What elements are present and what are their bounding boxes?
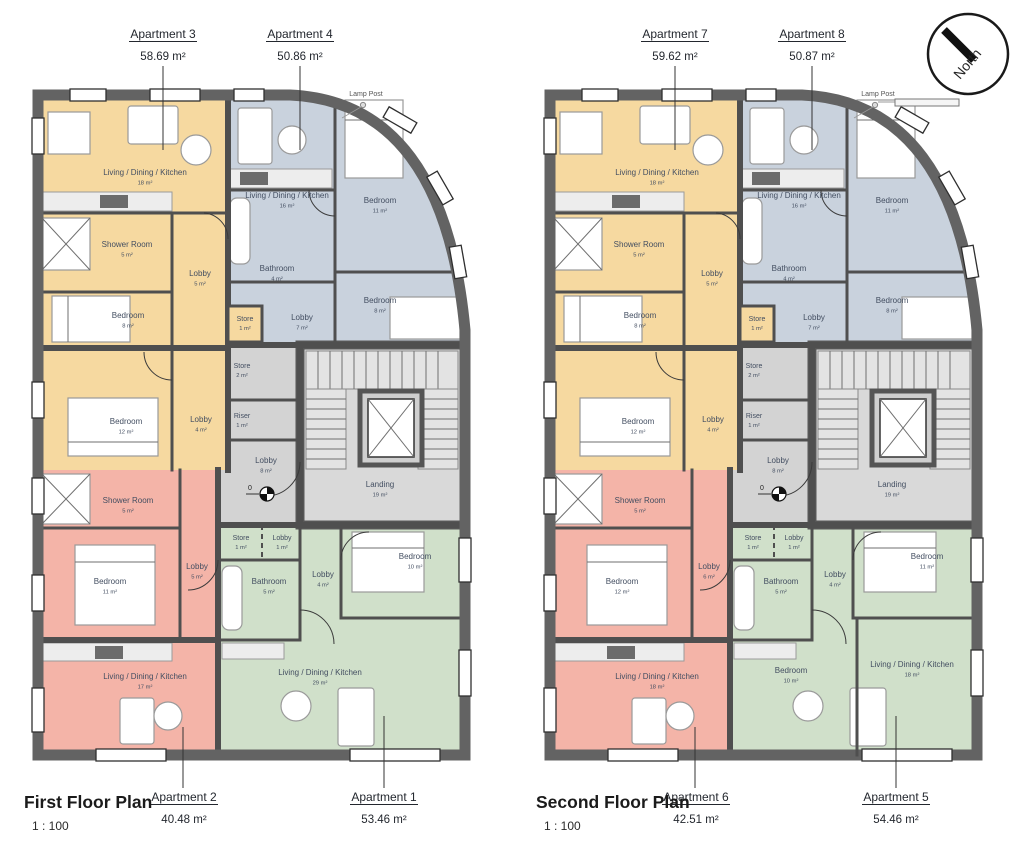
callout-bottom-right-area: 54.46 m² (873, 814, 919, 826)
first-floor-plan: Living / Dining / Kitchen18 m² Shower Ro… (0, 0, 512, 852)
callout-top-right-area: 50.86 m² (277, 51, 323, 63)
callout-top-left-name: Apartment 7 (642, 27, 708, 41)
callout-top-right-name: Apartment 8 (779, 27, 845, 41)
title-block: Second Floor Plan 1 : 100 (536, 792, 690, 833)
lamp-post-label: Lamp Post (861, 91, 895, 98)
callout-top-left-area: 58.69 m² (140, 51, 186, 63)
title-block: First Floor Plan 1 : 100 (24, 792, 152, 833)
second-floor-plan: Living / Dining / Kitchen18 m² Shower Ro… (512, 0, 1024, 852)
plan-scale: 1 : 100 (32, 819, 69, 833)
callout-bottom-left-area: 42.51 m² (673, 814, 719, 826)
lift-shaft (360, 391, 422, 465)
plan-scale: 1 : 100 (544, 819, 581, 833)
callout-bottom-left-area: 40.48 m² (161, 814, 207, 826)
svg-text:0: 0 (760, 485, 764, 492)
floor-plan-drawing: Living / Dining / Kitchen18 m² Shower Ro… (512, 0, 1024, 852)
yellow-store-box (228, 306, 262, 342)
callout-bottom-right-name: Apartment 5 (863, 790, 929, 804)
lift-shaft (872, 391, 934, 465)
north-arrow-icon: North (924, 10, 1012, 98)
lamp-post-label: Lamp Post (349, 91, 383, 98)
callout-top-left-name: Apartment 3 (130, 27, 196, 41)
callout-top-right-name: Apartment 4 (267, 27, 333, 41)
callout-top-right-area: 50.87 m² (789, 51, 835, 63)
callout-bottom-right-area: 53.46 m² (361, 814, 407, 826)
callout-bottom-right-name: Apartment 1 (351, 790, 417, 804)
callout-bottom-left-name: Apartment 2 (151, 790, 217, 804)
floor-plan-drawing: Living / Dining / Kitchen18 m² Shower Ro… (0, 0, 512, 852)
callout-top-left-area: 59.62 m² (652, 51, 698, 63)
plan-title: First Floor Plan (24, 792, 152, 812)
svg-text:0: 0 (248, 485, 252, 492)
yellow-store-box (740, 306, 774, 342)
plan-title: Second Floor Plan (536, 792, 690, 812)
north-arrow-badge: North (924, 10, 1012, 98)
